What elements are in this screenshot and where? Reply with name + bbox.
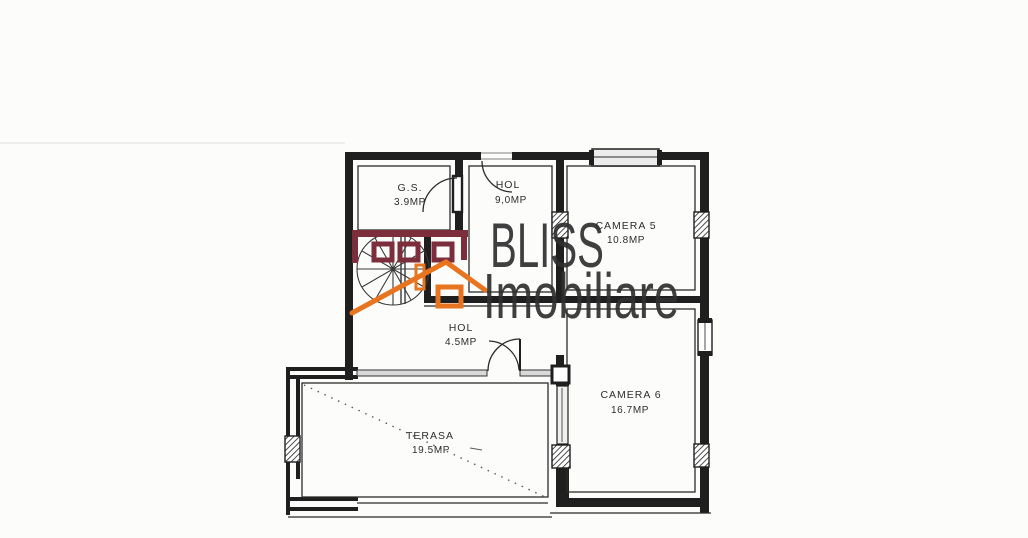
room-label-gs: G.S. [397,182,422,194]
room-label-hol-lower: HOL [449,322,474,334]
room-label-terasa: TERASA [406,430,454,442]
room-area-terasa: 19.5MP [412,445,450,456]
room-area-hol-upper: 9,0MP [495,195,527,206]
room-area-camera-5: 10.8MP [607,235,645,246]
scanned-floor-plan-page: BLISS Imobiliare G.S. 3.9MP HOL 9,0MP CA… [0,0,1028,538]
floor-plan-canvas: BLISS Imobiliare G.S. 3.9MP HOL 9,0MP CA… [0,0,1028,538]
room-label-camera-5: CAMERA 5 [595,220,656,232]
gs-door-leaf [453,176,462,212]
room-area-gs: 3.9MP [394,197,426,208]
glazed-wall-left [357,370,487,376]
room-area-hol-lower: 4.5MP [445,337,477,348]
watermark-brand-line2: Imobiliare [483,260,679,332]
corner-column [552,366,569,383]
room-area-camera-6: 16.7MP [611,405,649,416]
room-label-camera-6: CAMERA 6 [600,389,661,401]
room-label-hol-upper: HOL [496,179,521,191]
glazed-wall-right [520,370,553,376]
